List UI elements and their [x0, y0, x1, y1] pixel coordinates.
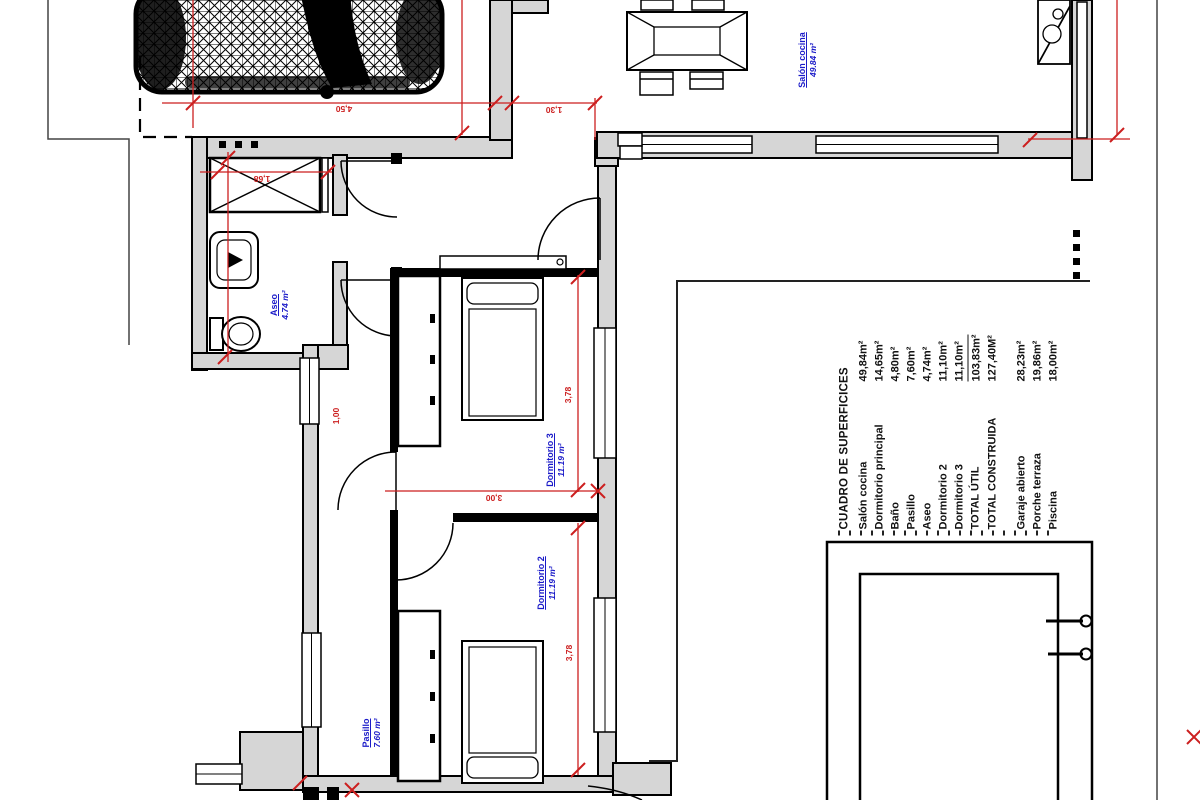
table-row-total-util: TOTAL ÚTIL 103,83m²: [968, 295, 985, 530]
dim-shower-width: 1,68: [242, 174, 282, 184]
room-label-dormitorio-3: Dormitorio 3 11.19 m²: [541, 420, 571, 500]
bed-dorm2: [462, 641, 543, 783]
car-mirror: [320, 85, 334, 99]
table-row: Dormitorio principal 14,65m²: [872, 295, 888, 530]
table-row: Piscina 18,00m²: [1046, 295, 1062, 530]
room-area: 49.84 m²: [808, 43, 819, 77]
floor-plan-drawing: 4,50 1,30 1,68 3,78 3,00 3,78 1,00 Salón…: [0, 0, 1200, 800]
room-name: Salón cocina: [797, 32, 808, 88]
dim-dorm2-depth: 3,78: [564, 633, 574, 673]
room-label-aseo: Aseo 4.74 m²: [266, 275, 294, 335]
table-row: Garaje abierto 28,23m²: [1014, 295, 1030, 530]
dim-dorm3-depth: 3,78: [563, 375, 573, 415]
areas-table-title: CUADRO DE SUPERFICICES: [839, 295, 851, 530]
room-name: Pasillo: [361, 719, 372, 748]
table-row: Dormitorio 3 11,10m²: [952, 295, 968, 530]
dim-window-width: 1,00: [331, 396, 341, 436]
room-area: 11.19 m²: [556, 443, 567, 476]
wardrobe-dorm2: [398, 611, 440, 781]
toilet: [210, 317, 260, 351]
room-label-pasillo: Pasillo 7.60 m²: [358, 701, 386, 765]
bed-dorm3: [462, 278, 543, 420]
table-row-total-construida: TOTAL CONSTRUIDA 127,40M²: [985, 295, 1001, 530]
room-name: Dormitorio 2: [536, 556, 547, 610]
dim-dorm3-width: 3,00: [474, 493, 514, 503]
room-name: Aseo: [269, 294, 280, 316]
dorm3-door-arc: [338, 452, 396, 510]
pool: [827, 542, 1092, 800]
hall-dresser: [440, 256, 566, 269]
room-name: Dormitorio 3: [545, 433, 556, 487]
dining-table: [627, 0, 747, 95]
garage-car: [134, 0, 444, 99]
dim-garage-width: 4,50: [324, 104, 364, 114]
dim-entry-gap: 1,30: [534, 105, 574, 115]
table-row: Baño 4,80m²: [888, 295, 904, 530]
room-area: 11.19 m²: [547, 566, 558, 599]
entry-steps: [618, 133, 642, 159]
entry-door-arc: [538, 198, 600, 260]
dorm2-door-arc: [396, 523, 453, 580]
table-row: Porche terraza 19,86m²: [1030, 295, 1046, 530]
table-row: Salón cocina 49,84m²: [856, 295, 872, 530]
room-area: 7.60 m²: [372, 718, 383, 747]
table-row: Dormitorio 2 11,10m²: [936, 295, 952, 530]
pool-ladder: [1046, 616, 1092, 660]
aseo-door-arc: [341, 161, 397, 217]
table-row: Aseo 4,74m²: [920, 295, 936, 530]
wardrobe-dorm3: [398, 276, 440, 446]
sink: [210, 232, 258, 288]
hall-door-arc: [341, 280, 397, 336]
room-area: 4.74 m²: [280, 290, 291, 319]
corner-fixture: [1038, 0, 1070, 64]
areas-table: CUADRO DE SUPERFICICES Salón cocina 49,8…: [839, 295, 1093, 530]
room-label-salon-cocina: Salón cocina 49.84 m²: [793, 20, 823, 100]
table-row: Pasillo 7,60m²: [904, 295, 920, 530]
table-gap: [1001, 295, 1014, 530]
room-label-dormitorio-2: Dormitorio 2 11.19 m²: [532, 543, 562, 623]
